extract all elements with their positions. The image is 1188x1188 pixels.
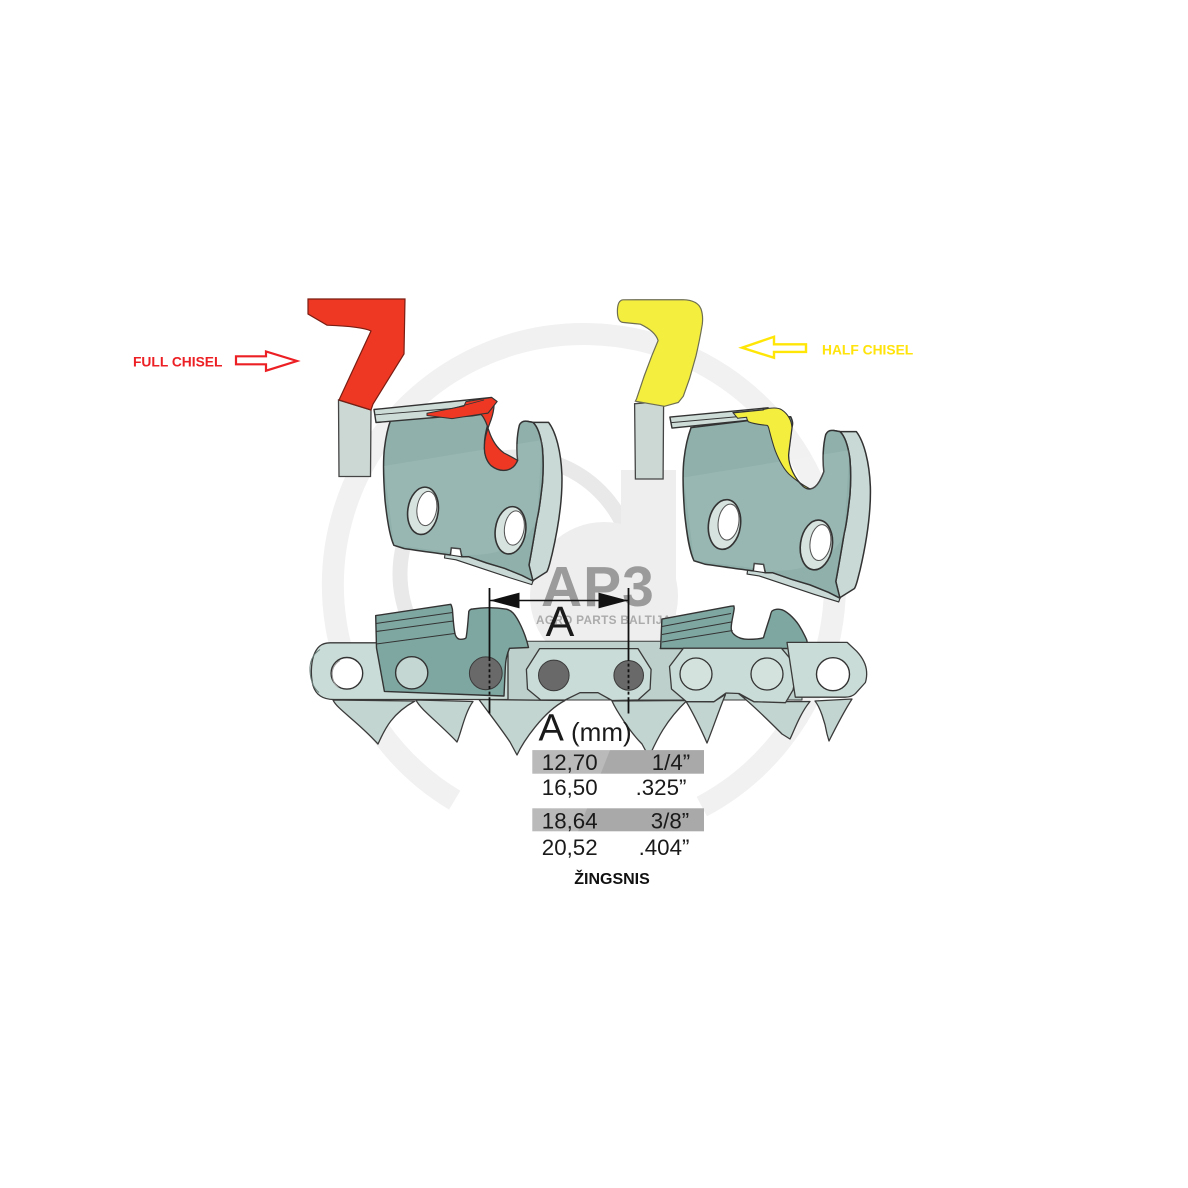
svg-text:20,52: 20,52 <box>542 835 598 860</box>
svg-text:FULL CHISEL: FULL CHISEL <box>133 355 222 370</box>
svg-text:.404”: .404” <box>639 835 690 860</box>
svg-text:HALF CHISEL: HALF CHISEL <box>822 343 913 358</box>
svg-text:16,50: 16,50 <box>542 775 598 800</box>
svg-text:12,70: 12,70 <box>542 750 598 775</box>
svg-text:3/8”: 3/8” <box>651 808 689 833</box>
svg-text:18,64: 18,64 <box>542 808 598 833</box>
svg-text:ŽINGSNIS: ŽINGSNIS <box>574 869 650 888</box>
svg-text:1/4”: 1/4” <box>652 750 690 775</box>
svg-text:A: A <box>546 598 575 646</box>
svg-text:A: A <box>539 707 565 749</box>
svg-text:(mm): (mm) <box>571 717 632 747</box>
svg-text:.325”: .325” <box>636 775 687 800</box>
